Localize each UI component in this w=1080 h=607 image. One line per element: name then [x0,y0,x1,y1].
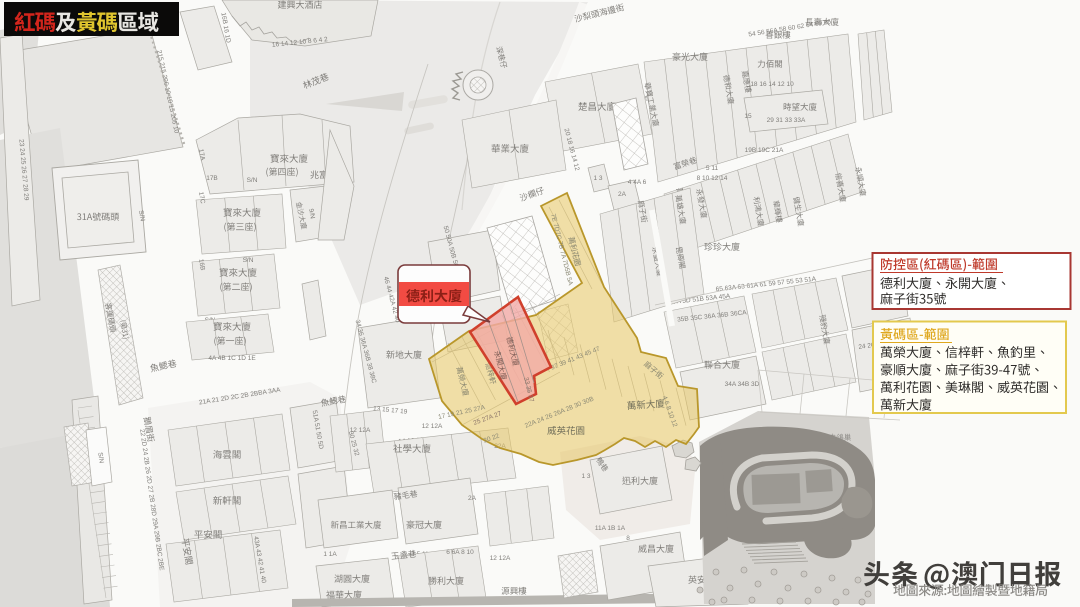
svg-text:2A: 2A [468,495,477,502]
svg-text:29 31 33 33A: 29 31 33 33A [767,117,806,124]
svg-text:4A 4B 1C 1D 1E: 4A 4B 1C 1D 1E [208,355,256,362]
svg-text:S/N: S/N [247,177,258,184]
svg-text:34A 34B 3D: 34A 34B 3D [725,381,760,388]
svg-text:11A 1B 1A: 11A 1B 1A [595,525,626,532]
svg-text:12 12A: 12 12A [422,423,443,430]
svg-text:19B 19C 21A: 19B 19C 21A [745,147,784,154]
svg-text:6 6A 8 10: 6 6A 8 10 [446,549,474,556]
svg-text:12 12A: 12 12A [350,427,371,434]
svg-text:1 3: 1 3 [593,175,602,182]
svg-text:15: 15 [744,113,752,120]
svg-text:1 3: 1 3 [581,473,590,480]
svg-text:18 16 14 12 10: 18 16 14 12 10 [750,81,794,88]
svg-text:S/N: S/N [243,257,254,264]
svg-text:5 11: 5 11 [706,165,719,172]
svg-text:8: 8 [626,535,630,542]
svg-text:2A: 2A [618,191,627,198]
svg-text:17B: 17B [206,175,218,182]
svg-text:8 10 12 14: 8 10 12 14 [697,175,728,182]
svg-text:1 1A: 1 1A [323,551,337,558]
svg-text:4 4A 6: 4 4A 6 [628,179,647,186]
svg-text:12 12A: 12 12A [490,555,511,562]
